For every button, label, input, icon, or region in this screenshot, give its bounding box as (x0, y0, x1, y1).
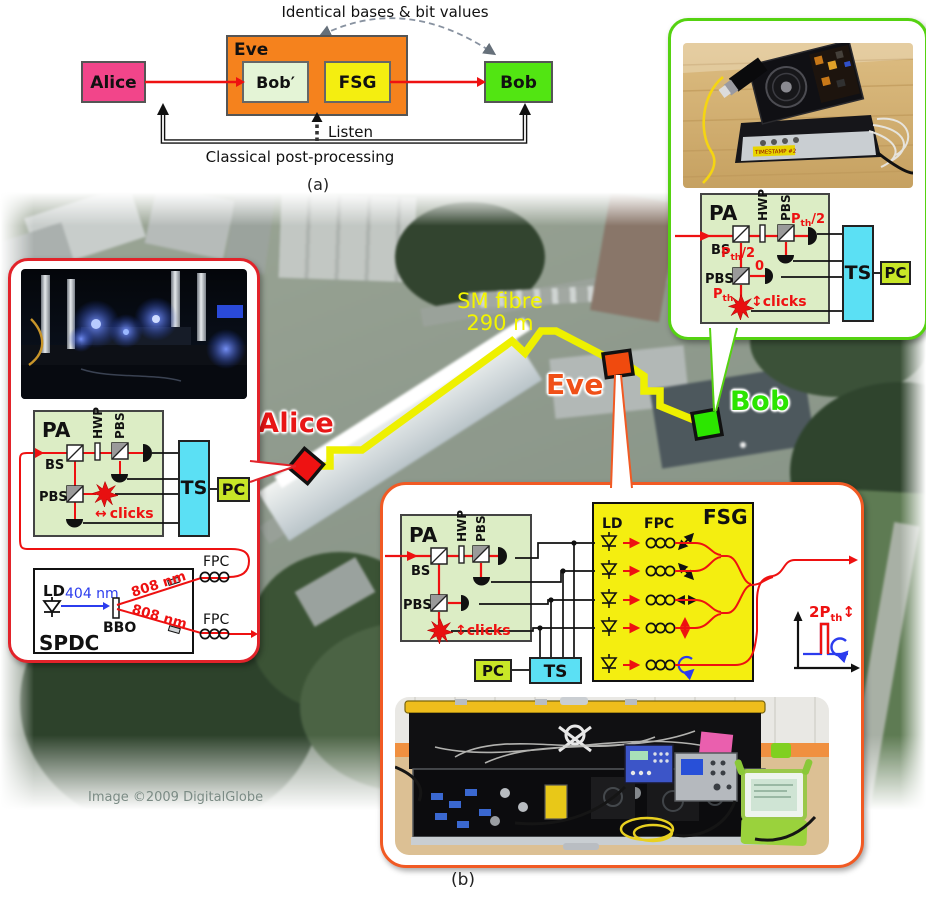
caption-a: (a) (307, 175, 329, 194)
pbs2-cube (733, 268, 749, 284)
signal-generator (625, 745, 673, 783)
alice-box-label: Alice (90, 73, 136, 93)
eve-inset: FSG LD FPC PA (380, 482, 864, 868)
classical-label: Classical post-processing (206, 148, 395, 166)
hwp-label: HWP (91, 407, 105, 439)
bob-box-label: Bob (500, 73, 537, 93)
eve-schematic: FSG LD FPC PA (383, 501, 861, 697)
clicks-label: ↕clicks (751, 294, 807, 310)
classical-arrowhead-bob (519, 103, 531, 115)
pump-wavelength-label: 404 nm (65, 586, 119, 602)
ts-label: TS (181, 477, 208, 499)
pbs2-cube (67, 486, 83, 502)
fpc-label-bottom: FPC (203, 612, 229, 628)
caption-b: (b) (0, 870, 926, 890)
hwp-plate (459, 546, 464, 563)
alice-schematic: PA (11, 261, 257, 660)
olpc-laptop (734, 758, 813, 846)
alice-pa-label: PA (42, 418, 71, 442)
map-credit: Image ©2009 DigitalGlobe (88, 790, 263, 805)
svg-text:BS: BS (411, 564, 430, 579)
hwp-plate (95, 443, 100, 460)
green-adapter (771, 743, 791, 758)
pbs-cube (473, 546, 489, 562)
figure-canvas: SM fibre 290 m Alice Eve Bob Image ©2009… (0, 0, 926, 901)
fsg-ld-label: LD (602, 516, 623, 532)
map-alice-label: Alice (258, 408, 334, 439)
pulse-amplitude-label: 2Pth↕ (809, 603, 855, 624)
pbs-cube (778, 225, 794, 241)
eve-box-label: Eve (234, 40, 268, 60)
svg-text:HWP: HWP (455, 510, 469, 542)
fibre-length-label: SM fibre 290 m (420, 290, 580, 334)
eve-equipment-photo (395, 697, 829, 855)
svg-text:PBS: PBS (474, 515, 488, 542)
eve-pa-label: PA (409, 523, 438, 547)
bs-cube (431, 548, 447, 564)
pbs1-label: PBS (113, 412, 127, 439)
sm-fibre-path (318, 331, 699, 466)
svg-text:PC: PC (884, 264, 906, 282)
pbs2-label: PBS (39, 490, 68, 505)
bs-cube (733, 226, 749, 242)
fsg-title: FSG (703, 505, 747, 529)
panel-a-diagram: Identical bases & bit values Eve Alice B… (55, 0, 585, 200)
spdc-ld-label: LD (43, 582, 65, 600)
fibre-label-line2: 290 m (420, 312, 580, 334)
fibre-label-line1: SM fibre (420, 290, 580, 312)
svg-text:PBS: PBS (403, 598, 432, 613)
classical-arrowhead-alice (157, 103, 169, 115)
clicks-label: ↕clicks (455, 623, 511, 639)
alice-inset: PA (8, 258, 260, 663)
junction-dots (537, 540, 576, 630)
svg-text:TS: TS (544, 662, 568, 682)
pc-label: PC (222, 480, 245, 499)
oscilloscope (675, 753, 737, 801)
bob-detector-photo: TIMESTAMP #2 (683, 43, 913, 188)
pulse-inset: 2Pth↕ (794, 603, 861, 673)
bob-schematic: PA BS HWP (671, 188, 925, 337)
bob-prime-label: Bob′ (256, 73, 295, 92)
bs-label: BS (45, 458, 64, 473)
pbs-cube (112, 443, 128, 459)
svg-text:TS: TS (845, 262, 872, 284)
pbs2-cube (431, 595, 447, 611)
map-eve-label: Eve (546, 368, 604, 401)
fpc-label-top: FPC (203, 554, 229, 570)
fsg-fpc-label: FPC (644, 516, 674, 532)
svg-text:HWP: HWP (756, 189, 770, 221)
map-bob-label: Bob (730, 386, 790, 417)
clicks-label: ↔clicks (95, 506, 154, 522)
svg-text:PBS: PBS (705, 272, 734, 287)
eve-site-square (603, 350, 633, 378)
bs-cube (67, 445, 83, 461)
yellow-meter (545, 785, 567, 819)
bob-site-square (692, 409, 722, 439)
fsg-output-arrowhead (849, 556, 858, 565)
bbo-crystal (113, 598, 119, 618)
alice-site-square (288, 448, 323, 483)
spdc-title: SPDC (39, 631, 99, 655)
threshold-label-zero: 0 (755, 259, 764, 274)
output-arrowhead (251, 630, 257, 638)
bob-inset: TIMESTAMP #2 (668, 18, 926, 340)
fsg-box-label: FSG (339, 73, 377, 93)
bob-pa-label: PA (709, 201, 738, 225)
svg-text:PC: PC (482, 662, 504, 680)
bbo-label: BBO (103, 620, 136, 636)
listen-label: Listen (328, 123, 373, 141)
hwp-plate (760, 225, 765, 242)
